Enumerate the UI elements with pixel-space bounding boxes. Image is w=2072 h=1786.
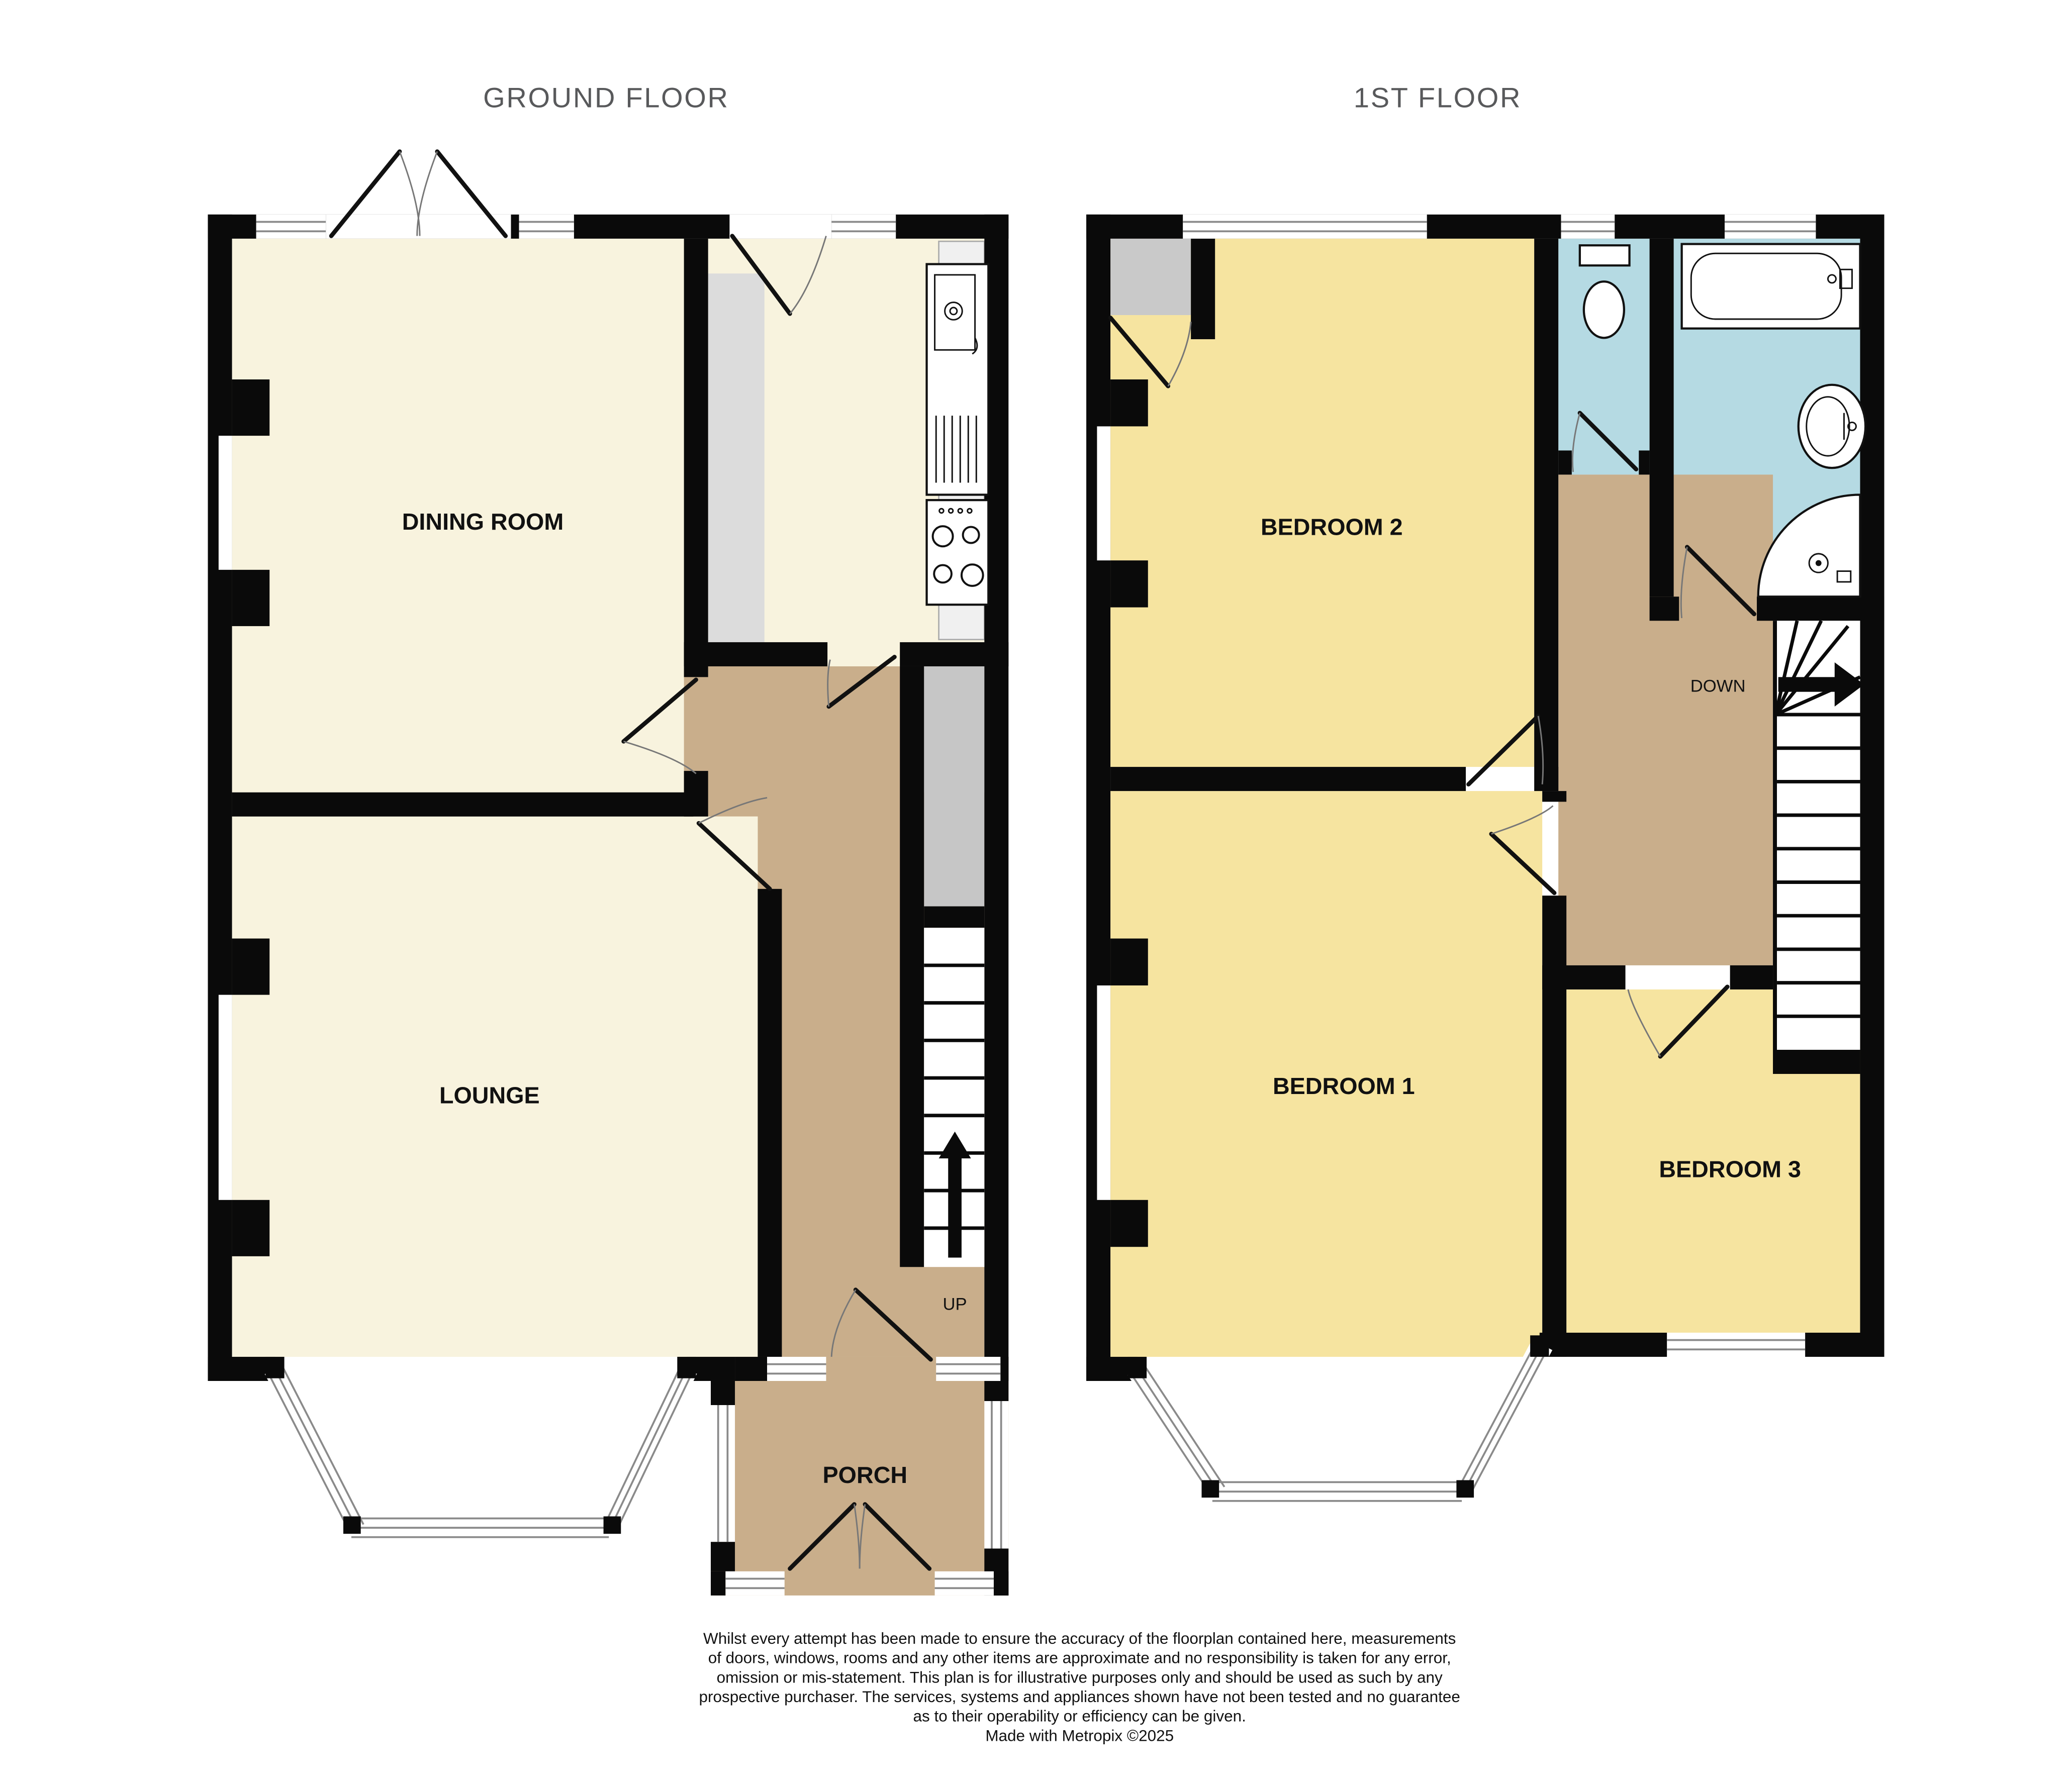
- wall: [711, 1381, 735, 1405]
- chimney-pier: [1110, 379, 1148, 426]
- wall: [208, 1357, 275, 1381]
- wall: [684, 642, 827, 666]
- wall: [684, 666, 708, 677]
- lounge-label: LOUNGE: [439, 1082, 540, 1109]
- wall: [1542, 965, 1625, 989]
- chimney-pier: [232, 1200, 270, 1256]
- first-floor-plan: 1ST FLOOR: [1086, 81, 1884, 1503]
- disclaimer-line: omission or mis-statement. This plan is …: [717, 1668, 1443, 1686]
- wall: [758, 889, 782, 1357]
- wall: [208, 215, 232, 1381]
- ground-floor-plan: GROUND FLOOR: [208, 81, 1009, 1595]
- wall: [1534, 239, 1558, 791]
- wall: [1086, 215, 1110, 1381]
- wall: [1542, 791, 1566, 802]
- window: [936, 1357, 1000, 1381]
- window: [935, 1571, 994, 1596]
- chimney-pier: [1110, 560, 1148, 607]
- wall: [1558, 450, 1572, 474]
- down-label: DOWN: [1690, 677, 1746, 696]
- wall-recess: [219, 436, 232, 570]
- up-label: UP: [943, 1295, 967, 1314]
- disclaimer: Whilst every attempt has been made to en…: [699, 1630, 1460, 1744]
- wall-recess: [1097, 426, 1110, 560]
- wall: [232, 792, 694, 817]
- window: [1725, 215, 1816, 239]
- wall: [1542, 767, 1558, 791]
- first-floor-title: 1ST FLOOR: [1354, 81, 1522, 113]
- wall-recess: [219, 995, 232, 1200]
- window: [519, 215, 574, 239]
- porch-label: PORCH: [823, 1462, 908, 1488]
- basin-icon: [1799, 385, 1865, 468]
- bay-window-bedroom1: [1128, 1335, 1549, 1503]
- wall: [900, 666, 924, 1267]
- chimney-pier: [232, 939, 270, 995]
- wall: [1650, 239, 1674, 597]
- bedroom1-label: BEDROOM 1: [1273, 1073, 1415, 1099]
- window: [767, 1357, 826, 1381]
- bedroom2-closet: [1110, 239, 1191, 315]
- wall: [1000, 1357, 1008, 1381]
- window: [1667, 1333, 1805, 1357]
- disclaimer-line: prospective purchaser. The services, sys…: [699, 1688, 1460, 1706]
- wall: [711, 1542, 735, 1571]
- understairs-closet: [924, 666, 984, 907]
- disclaimer-line: of doors, windows, rooms and any other i…: [708, 1649, 1451, 1667]
- window: [711, 1405, 735, 1542]
- wall: [900, 642, 1008, 666]
- bedroom3-label: BEDROOM 3: [1659, 1156, 1801, 1182]
- window: [984, 1401, 1008, 1548]
- window: [831, 215, 896, 239]
- window: [1561, 215, 1615, 239]
- wall: [1805, 1333, 1884, 1357]
- chimney-pier: [1110, 1200, 1148, 1247]
- stove-icon: [927, 500, 989, 605]
- wall: [1773, 621, 1777, 1050]
- kitchen-counter-left: [708, 273, 765, 642]
- bathtub-icon: [1682, 244, 1860, 329]
- wall: [1650, 597, 1679, 621]
- stairs-down: [1775, 621, 1864, 1050]
- bay-window-lounge: [265, 1357, 696, 1539]
- wall: [735, 1357, 767, 1381]
- chimney-pier: [232, 379, 270, 436]
- wall: [684, 239, 708, 666]
- disclaimer-line: Whilst every attempt has been made to en…: [703, 1630, 1456, 1647]
- back-door-opening: [729, 215, 831, 239]
- bedroom2-label: BEDROOM 2: [1261, 514, 1403, 540]
- wall: [994, 1571, 1008, 1596]
- floorplan-canvas: GROUND FLOOR: [0, 0, 2072, 1786]
- stairs-up: [924, 928, 984, 1267]
- window: [725, 1571, 784, 1596]
- wall: [1730, 965, 1773, 989]
- wall: [711, 1571, 725, 1596]
- kitchen-sink-icon: [927, 264, 989, 495]
- window: [1183, 215, 1427, 239]
- wall: [1191, 239, 1215, 339]
- disclaimer-line: as to their operability or efficiency ca…: [913, 1708, 1246, 1725]
- wall: [924, 907, 984, 928]
- wall: [1110, 767, 1466, 791]
- wall: [1639, 450, 1649, 474]
- wall: [1773, 1050, 1860, 1074]
- chimney-pier: [232, 570, 270, 626]
- wall: [1757, 597, 1884, 621]
- metropix-credit: Made with Metropix ©2025: [985, 1727, 1174, 1744]
- wall: [1542, 896, 1566, 1357]
- chimney-pier: [1110, 939, 1148, 985]
- bedroom2-area: [1110, 239, 1534, 767]
- dining-room-label: DINING ROOM: [402, 509, 564, 535]
- wall: [1860, 215, 1884, 1357]
- ground-floor-title: GROUND FLOOR: [483, 81, 729, 113]
- wall: [1540, 1333, 1667, 1357]
- window: [256, 215, 326, 239]
- wall-recess: [1097, 985, 1110, 1200]
